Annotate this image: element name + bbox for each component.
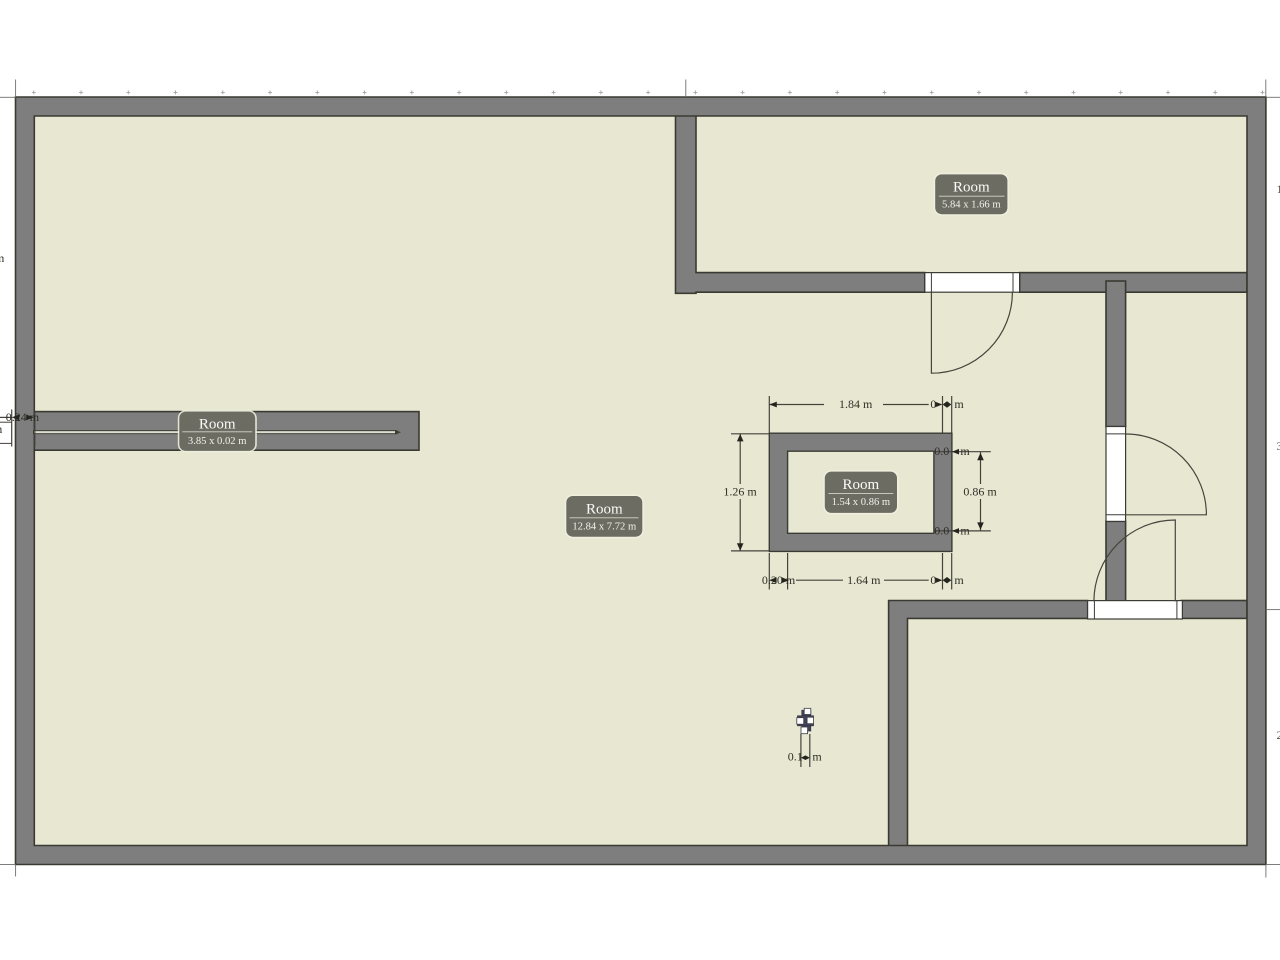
svg-text:Room: Room (199, 417, 236, 433)
svg-text:0: 0 (930, 397, 936, 411)
svg-text:0: 0 (930, 573, 936, 587)
svg-text:12.84 x 7.72 m: 12.84 x 7.72 m (572, 521, 637, 532)
svg-text:3.18: 3.18 (1277, 439, 1280, 453)
svg-text:0.24 m: 0.24 m (6, 410, 40, 424)
svg-text:3.85 x 0.02 m: 3.85 x 0.02 m (188, 436, 247, 447)
svg-text:Room: Room (843, 477, 880, 493)
svg-text:m: m (954, 573, 964, 587)
svg-text:Room: Room (953, 180, 990, 196)
svg-text:m: m (954, 397, 964, 411)
svg-text:0.0: 0.0 (934, 523, 949, 537)
svg-text:0.86 m: 0.86 m (963, 485, 997, 499)
svg-text:1.54 x 0.86 m: 1.54 x 0.86 m (832, 497, 891, 508)
svg-text:5.84 x 1.66 m: 5.84 x 1.66 m (942, 200, 1001, 211)
svg-text:m: m (0, 251, 5, 265)
svg-text:1.26 m: 1.26 m (723, 485, 757, 499)
svg-text:0.1: 0.1 (788, 749, 803, 763)
svg-text:2.54: 2.54 (1277, 728, 1280, 742)
svg-text:Room: Room (586, 502, 623, 518)
svg-text:m: m (960, 444, 970, 458)
svg-text:0.0: 0.0 (934, 444, 949, 458)
svg-text:1.84 m: 1.84 m (839, 397, 873, 411)
svg-text:m: m (812, 749, 822, 763)
svg-text:1.64 m: 1.64 m (847, 573, 881, 587)
svg-text:1.95: 1.95 (1277, 182, 1280, 196)
svg-text:0.20 m: 0.20 m (762, 573, 796, 587)
svg-text:m: m (960, 523, 970, 537)
